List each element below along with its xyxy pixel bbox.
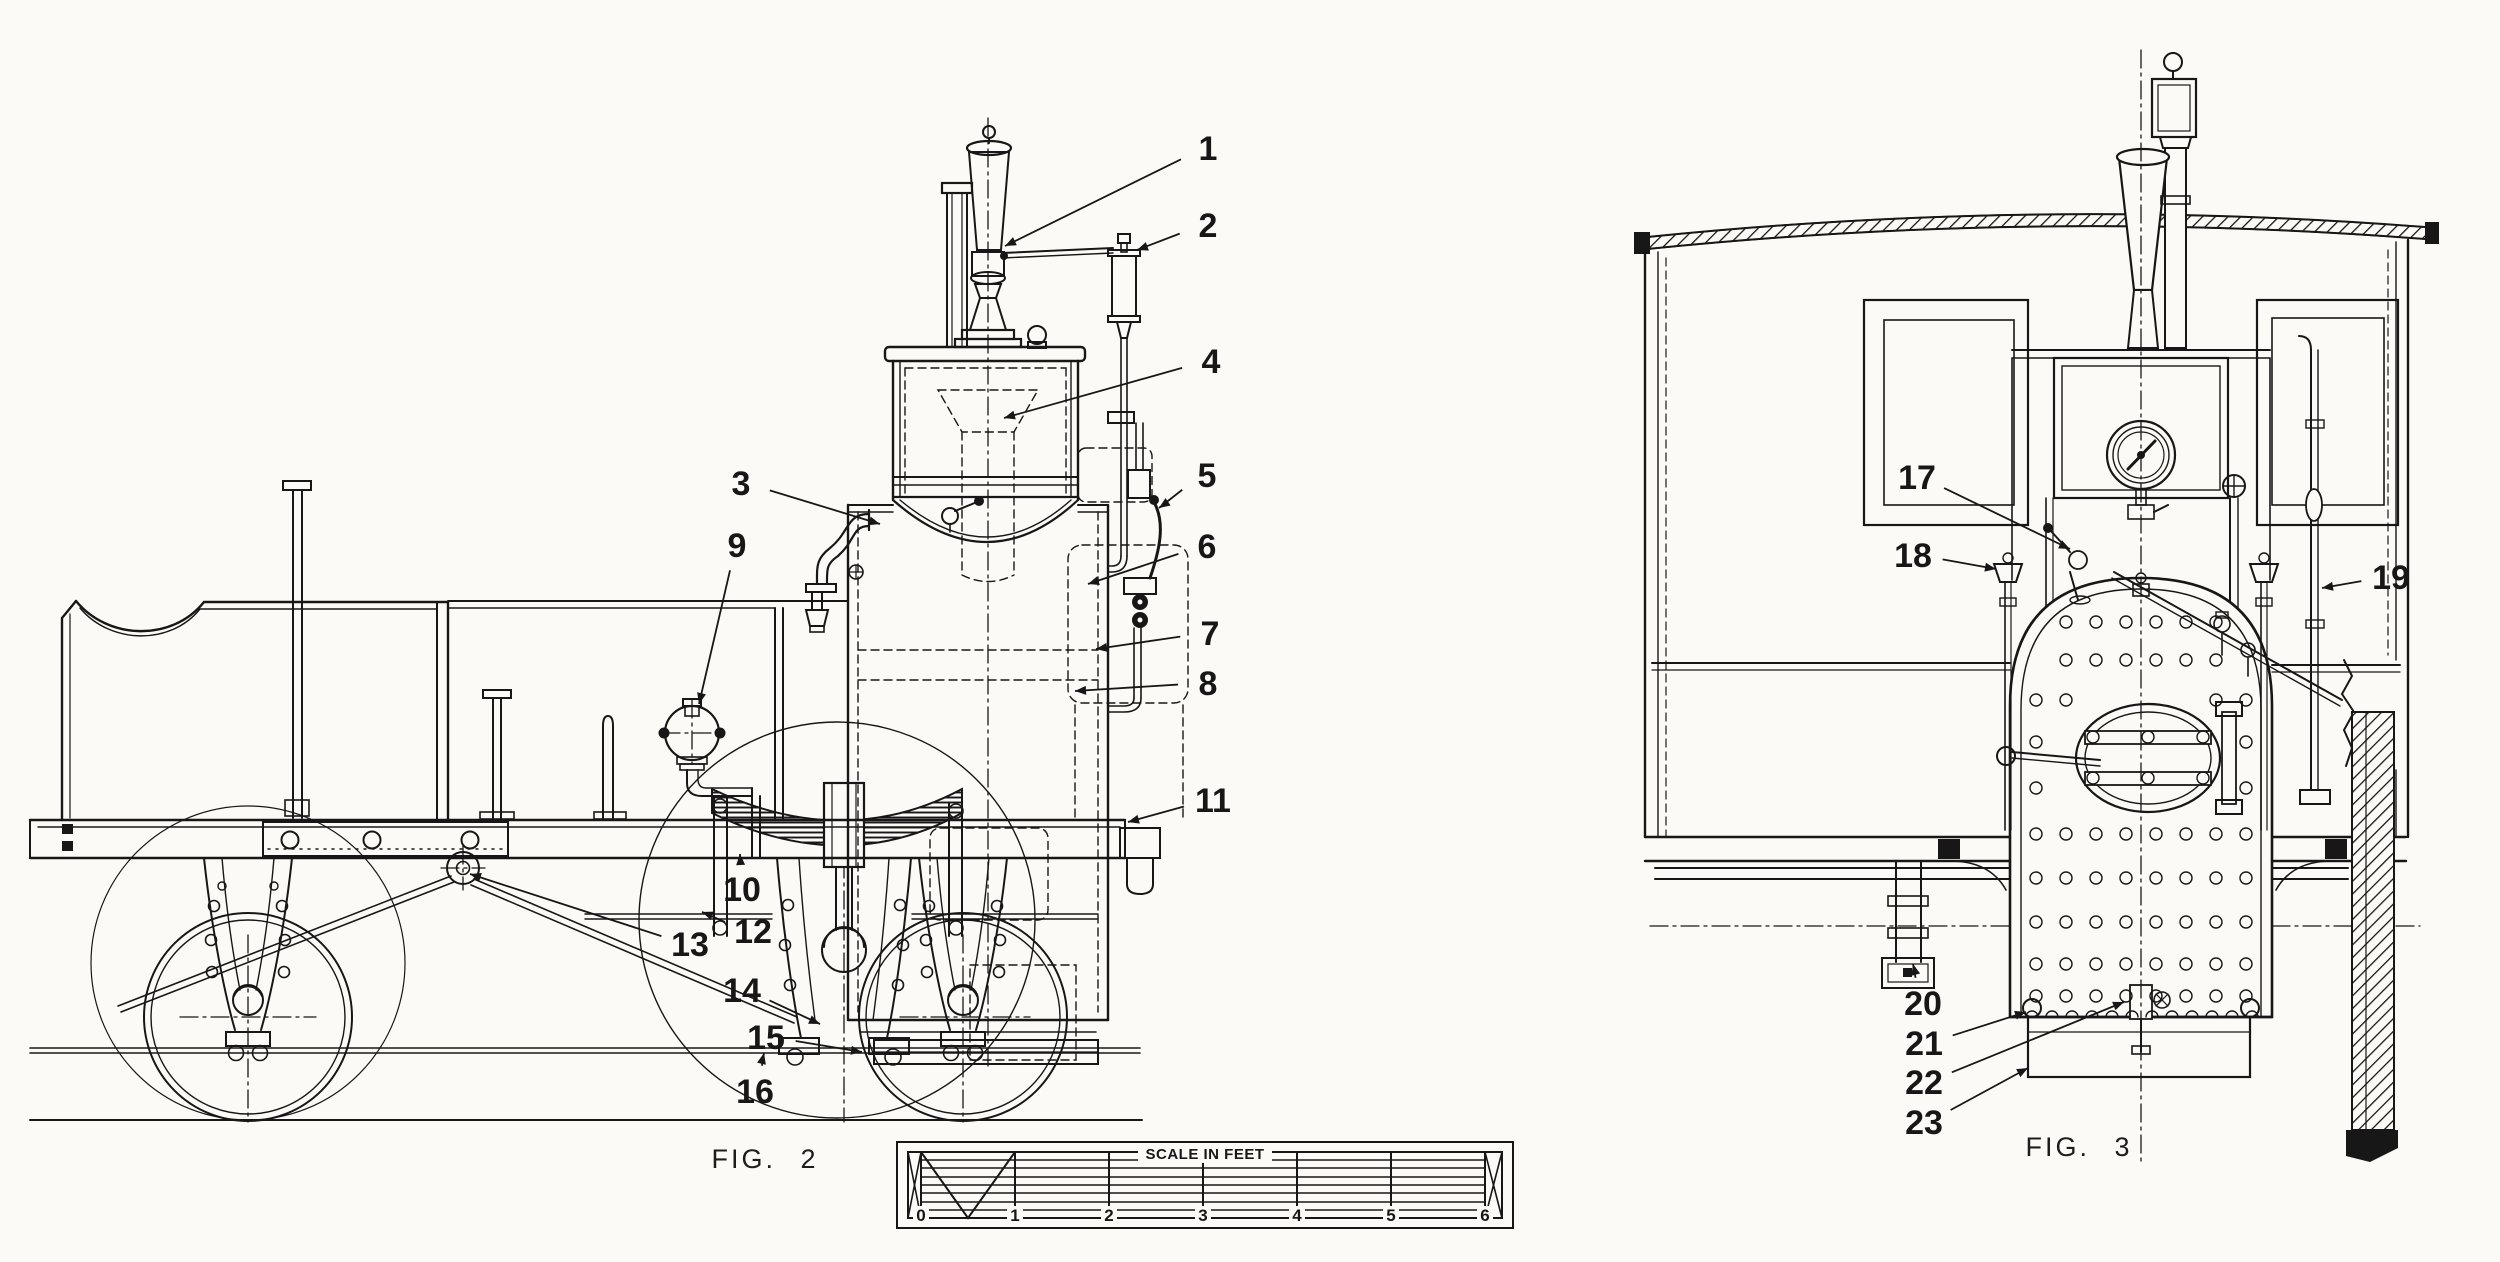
callout-17: 17 <box>1898 459 1936 497</box>
brake-shaft-boss <box>441 846 485 890</box>
drawing-page: 0123456 SCALE IN FEET FIG. 2 FIG. 3 1234… <box>0 0 2500 1262</box>
callout-22: 22 <box>1905 1064 1943 1102</box>
leader-line-1 <box>1005 159 1181 246</box>
footplate-and-levers <box>283 481 848 820</box>
chimney <box>942 183 972 347</box>
main-frame <box>30 820 1160 894</box>
wheel-section <box>2346 712 2398 1162</box>
callout-23: 23 <box>1905 1104 1943 1142</box>
leader-arrow-2 <box>1137 242 1149 250</box>
leader-arrow-19 <box>2322 582 2334 591</box>
callout-7: 7 <box>1201 615 1220 653</box>
callout-1: 1 <box>1199 130 1218 168</box>
scale-tick-label-2: 2 <box>1104 1206 1113 1225</box>
callout-8: 8 <box>1199 665 1218 703</box>
locomotive-technical-drawing: 0123456 SCALE IN FEET FIG. 2 FIG. 3 1234… <box>0 0 2500 1262</box>
callout-6: 6 <box>1198 528 1217 566</box>
scale-tick-label-3: 3 <box>1198 1206 1207 1225</box>
callout-20: 20 <box>1904 985 1942 1023</box>
feed-pipe <box>806 496 984 632</box>
fig3-label: FIG. 3 <box>2025 1132 2132 1162</box>
hidden-bunker <box>1068 448 1188 818</box>
leader-line-4 <box>1004 368 1182 418</box>
leader-arrow-4 <box>1004 411 1016 420</box>
callout-2: 2 <box>1199 207 1218 245</box>
fig2-callouts: 12345678910111213141516 <box>470 130 1231 1111</box>
ground-line <box>30 1048 1142 1120</box>
scale-tick-label-5: 5 <box>1386 1206 1395 1225</box>
safety-valve-9 <box>659 699 761 858</box>
leader-line-3 <box>770 490 880 524</box>
scale-bar-title: SCALE IN FEET <box>1145 1146 1264 1163</box>
callout-5: 5 <box>1198 457 1217 495</box>
scale-tick-label-6: 6 <box>1480 1206 1489 1225</box>
water-tank <box>62 601 448 820</box>
leader-line-23 <box>1951 1068 2028 1110</box>
callout-4: 4 <box>1202 343 1221 381</box>
cab-step <box>1882 861 1934 988</box>
callout-9: 9 <box>728 527 747 565</box>
callout-18: 18 <box>1894 537 1932 575</box>
fig3-stack <box>2117 53 2196 348</box>
leader-line-6 <box>1088 554 1178 584</box>
callout-3: 3 <box>732 465 751 503</box>
left-wheel <box>144 913 352 1122</box>
leader-arrow-8 <box>1075 686 1086 695</box>
callout-13: 13 <box>671 926 709 964</box>
scale-tick-label-1: 1 <box>1010 1206 1019 1225</box>
leader-line-13 <box>470 874 661 936</box>
fig2-drawing <box>30 118 1188 1122</box>
fig3-drawing <box>1634 50 2439 1162</box>
leader-line-21 <box>1953 1012 2026 1035</box>
whistle-safety-valve <box>955 126 1113 348</box>
fig2-label: FIG. 2 <box>711 1144 818 1174</box>
brake-rods <box>118 876 1098 1023</box>
leader-arrow-10 <box>736 854 745 865</box>
callout-21: 21 <box>1905 1025 1943 1063</box>
callout-14: 14 <box>723 972 761 1010</box>
leader-line-8 <box>1075 685 1178 691</box>
lubricator <box>1108 234 1140 572</box>
callout-12: 12 <box>734 913 772 951</box>
scale-bar: 0123456 SCALE IN FEET <box>897 1142 1513 1228</box>
callout-16: 16 <box>736 1073 774 1111</box>
scale-tick-label-4: 4 <box>1292 1206 1302 1225</box>
leader-line-17 <box>1944 488 2070 549</box>
callout-11: 11 <box>1195 782 1231 820</box>
callout-15: 15 <box>747 1019 785 1057</box>
callout-10: 10 <box>723 871 761 909</box>
scale-tick-label-0: 0 <box>916 1206 925 1225</box>
callout-19: 19 <box>2372 559 2410 597</box>
leader-line-9 <box>699 570 730 704</box>
